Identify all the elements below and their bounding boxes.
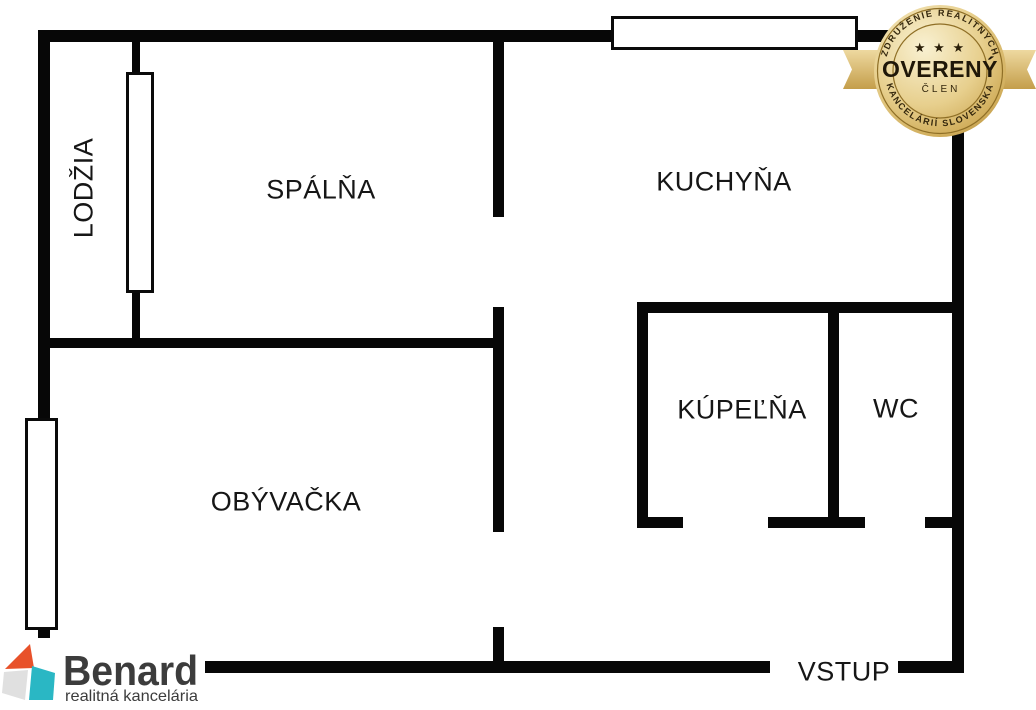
logo-name: Benard (63, 647, 198, 694)
wall-bathroom-bottom-a (637, 517, 683, 528)
room-label-obyvacka: OBÝVAČKA (211, 487, 362, 518)
wall-bathroom-bottom-b (768, 517, 865, 528)
room-label-spalna: SPÁLŇA (266, 175, 376, 206)
window-kitchen (611, 16, 858, 50)
agency-logo: Benard realitná kancelária (0, 638, 205, 710)
wall-bathroom-left (637, 302, 648, 528)
room-label-kupelna: KÚPEĽŇA (677, 395, 807, 426)
wall-bathroom-top (637, 302, 952, 313)
badge-subtitle: ČLEN (922, 82, 961, 95)
floorplan-canvas: LODŽIA SPÁLŇA KUCHYŇA KÚPEĽŇA WC OBÝVAČK… (0, 0, 1036, 710)
badge-stars-icon: ★ ★ ★ (914, 40, 966, 55)
verified-member-badge: ZDRUŽENIE REALITNÝCH KANCELÁRIÍ SLOVENSK… (835, 0, 1036, 145)
wall-spalna-obyvacka (38, 338, 504, 348)
wall-bottom-right-segment (898, 661, 964, 673)
wall-central-lower (493, 627, 504, 673)
house-icon (2, 644, 55, 700)
wall-central-middle (493, 307, 504, 532)
badge-title: OVERENÝ (882, 55, 998, 82)
wall-central-upper (493, 30, 504, 217)
room-label-lodzia: LODŽIA (69, 138, 100, 239)
room-label-kuchyna: KUCHYŇA (656, 167, 792, 198)
logo-tagline: realitná kancelária (65, 688, 198, 705)
room-label-wc: WC (873, 394, 919, 425)
wall-bathroom-wc-divider (828, 302, 839, 528)
window-livingroom (25, 418, 58, 630)
entrance-label: VSTUP (798, 657, 891, 688)
wall-bathroom-bottom-c (925, 517, 952, 528)
window-lodzia (126, 72, 154, 293)
